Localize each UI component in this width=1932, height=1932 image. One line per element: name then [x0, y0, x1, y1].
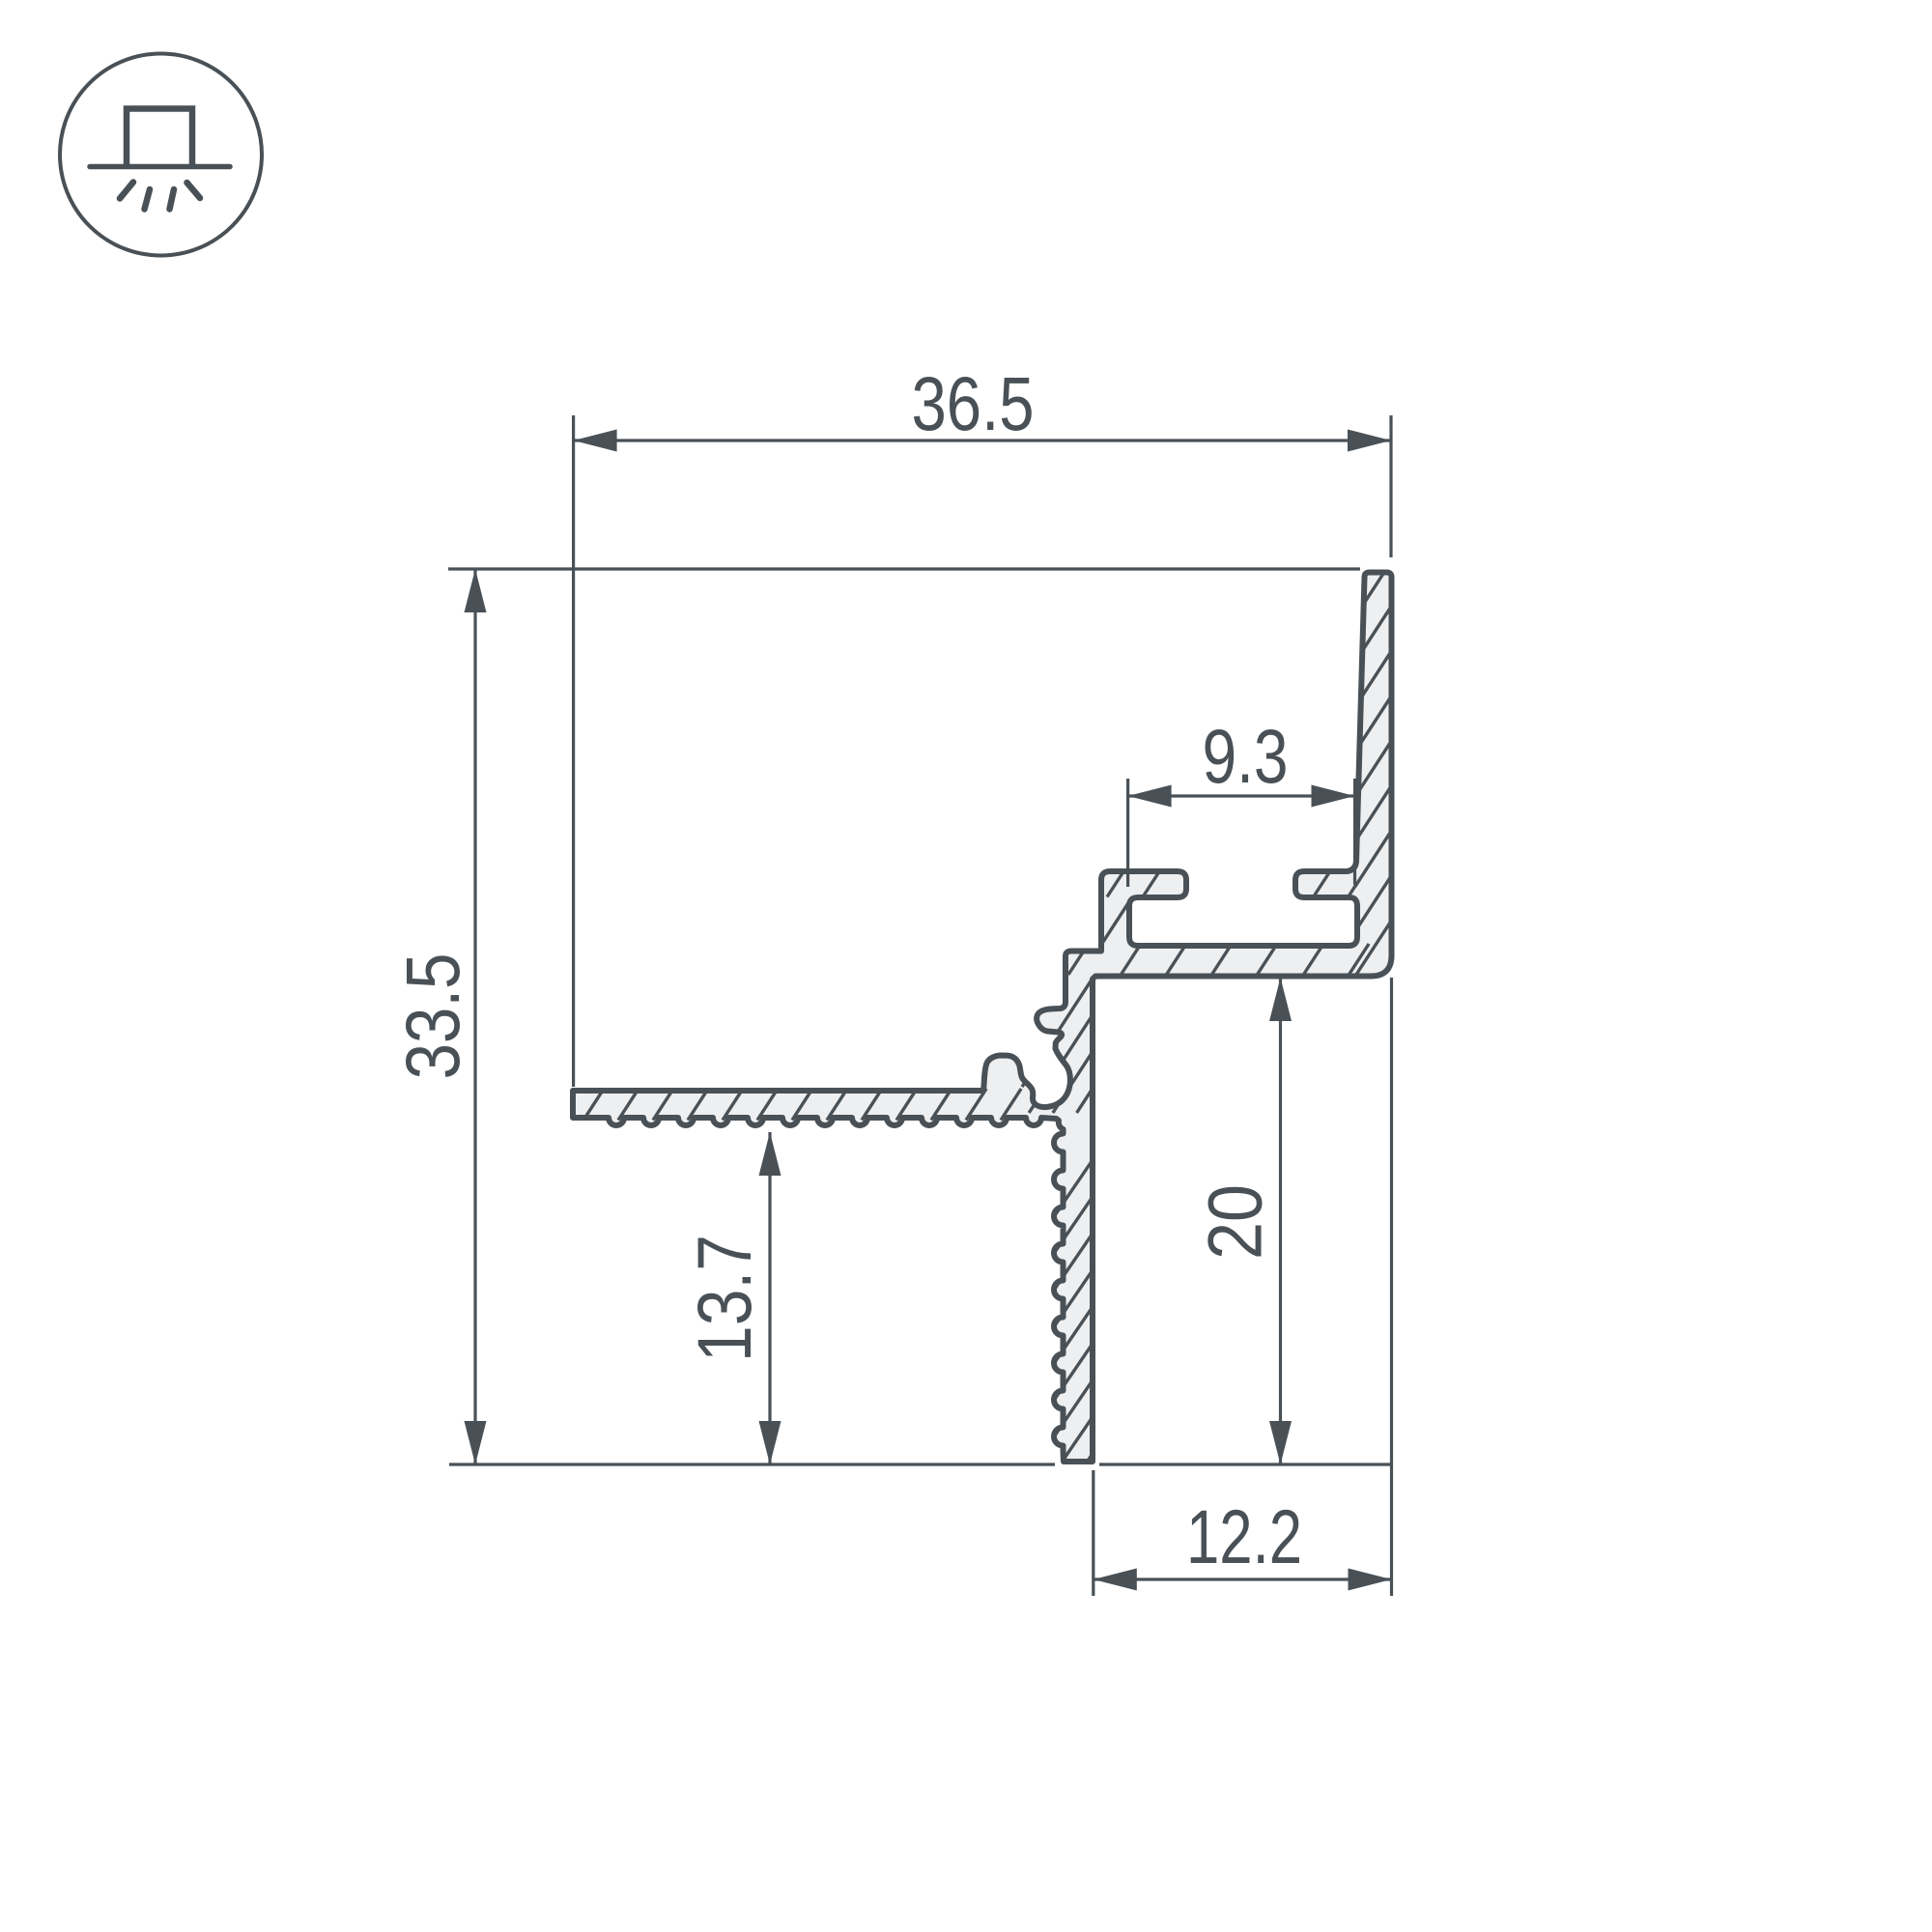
svg-text:12.2: 12.2 — [1186, 1493, 1302, 1579]
svg-text:9.3: 9.3 — [1203, 713, 1289, 799]
svg-text:36.5: 36.5 — [912, 360, 1035, 446]
svg-text:33.5: 33.5 — [389, 953, 475, 1080]
svg-text:20: 20 — [1192, 1184, 1278, 1260]
svg-text:13.7: 13.7 — [681, 1235, 767, 1362]
